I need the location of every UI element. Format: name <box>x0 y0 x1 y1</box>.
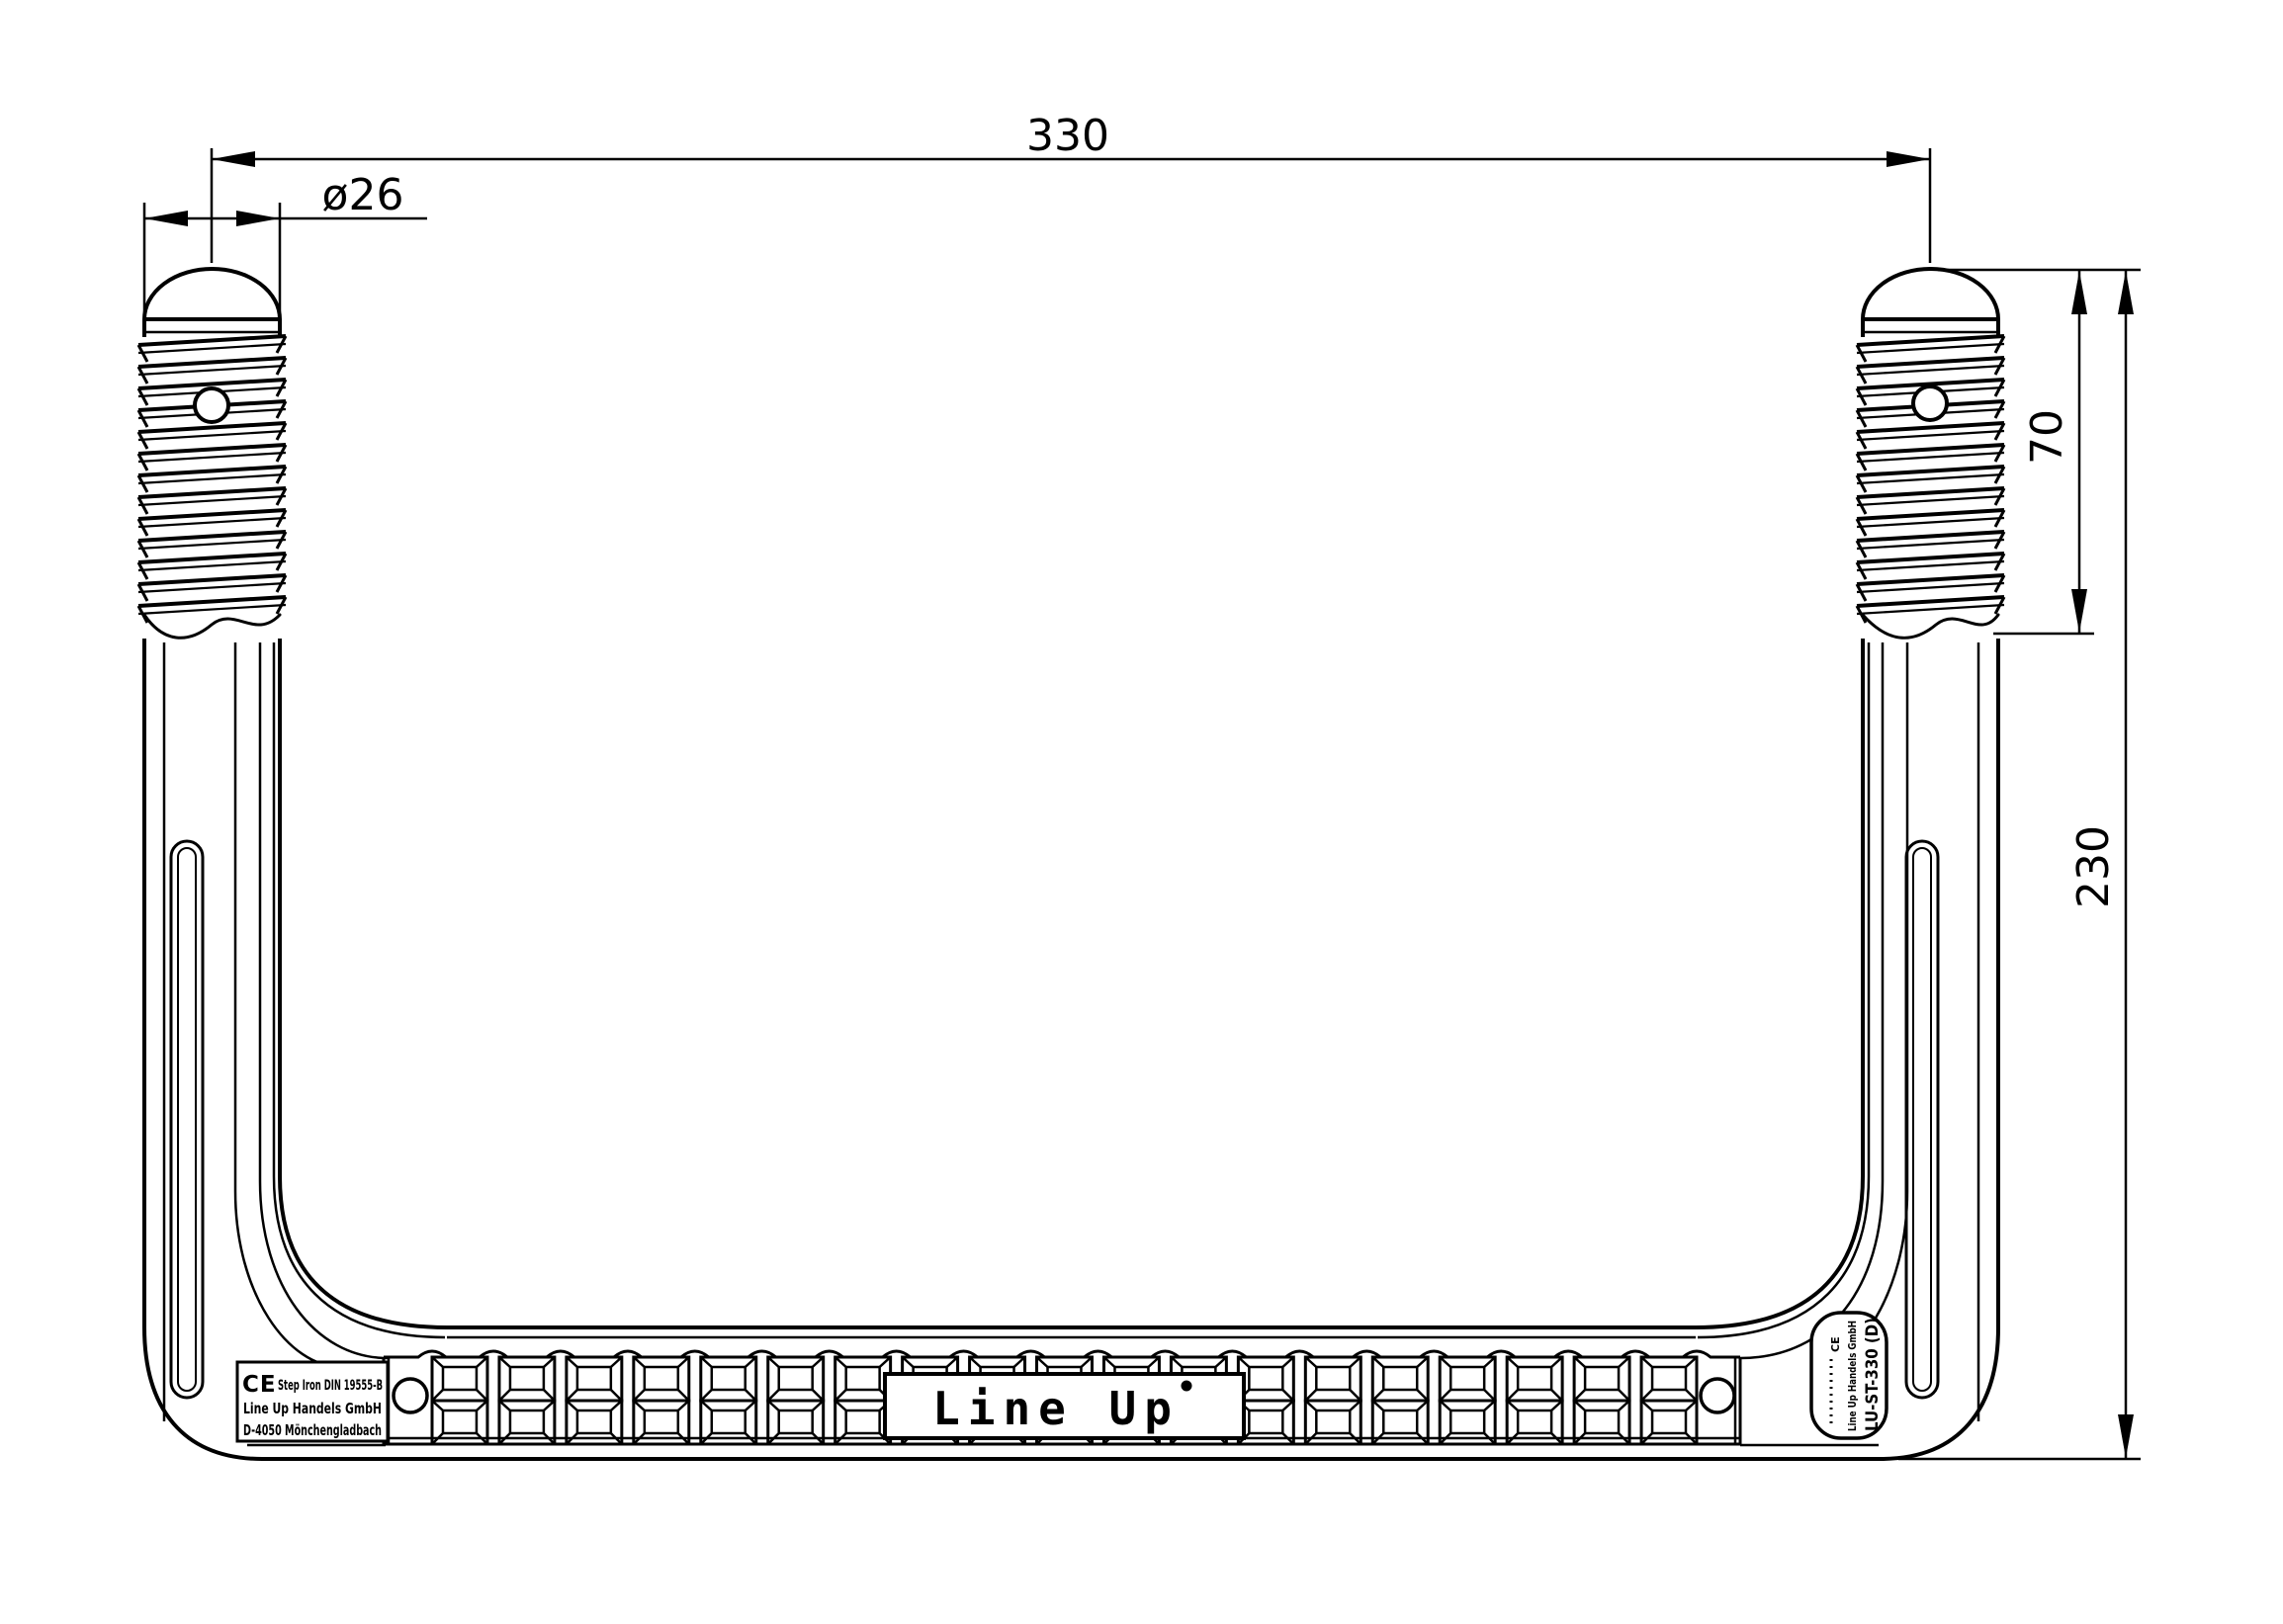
technical-drawing: Line Up CE Step Iron DIN 19555-B Line Up… <box>0 0 2283 1624</box>
ce-label: CE Step Iron DIN 19555-B Line Up Handels… <box>237 1362 388 1441</box>
registered-mark-dot <box>1182 1381 1192 1392</box>
mounting-hole-right <box>1701 1379 1734 1412</box>
dim-d26-text: ø26 <box>322 170 404 220</box>
dim-230-text: 230 <box>2068 825 2119 908</box>
mounting-hole-left <box>394 1379 427 1412</box>
brand-text: Line Up <box>932 1382 1180 1435</box>
left-stem-pin-hole <box>195 388 228 422</box>
ce-label-line3: D-4050 Mönchengladbach <box>243 1421 382 1439</box>
side-label-ce: CE <box>1829 1336 1842 1352</box>
side-label-large-text: LU-ST-330 (D) <box>1863 1318 1883 1431</box>
dim-330-text: 330 <box>1026 111 1109 161</box>
ce-label-line1: Step Iron DIN 19555-B <box>278 1378 383 1394</box>
ce-mark: CE <box>242 1372 277 1398</box>
ce-label-line2: Line Up Handels GmbH <box>243 1400 382 1417</box>
center-brand-label: Line Up <box>885 1374 1244 1438</box>
side-label-small-text: Line Up Handels GmbH <box>1847 1321 1859 1431</box>
right-stem-pin-hole <box>1913 386 1947 420</box>
drawing-sheet: Line Up CE Step Iron DIN 19555-B Line Up… <box>0 0 2283 1624</box>
side-label: CE Line Up Handels GmbH LU-ST-330 (D) <box>1811 1313 1887 1438</box>
dim-70-text: 70 <box>2022 409 2072 465</box>
